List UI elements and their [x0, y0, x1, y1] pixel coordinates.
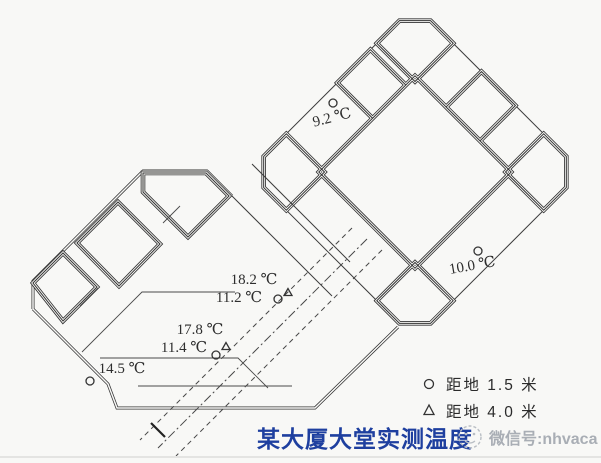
- watermark-text: 微信号:nhvaca: [488, 429, 598, 448]
- temp-label-10-0: 10.0 ℃: [448, 254, 497, 278]
- circle-marker-9-2: [329, 99, 337, 107]
- watermark: 微信号:nhvaca: [459, 426, 598, 448]
- scanned-floor-plan-page: 9.2 ℃ 18.2 ℃ 11.2 ℃ 17.8 ℃ 11.4 ℃ 14.5 ℃…: [0, 0, 601, 463]
- temp-label-18-2: 18.2 ℃: [231, 272, 278, 288]
- legend-triangle-icon: [424, 405, 434, 415]
- legend: 距地 1.5 米 距地 4.0 米: [424, 376, 539, 421]
- floor-plan-svg: 9.2 ℃ 18.2 ℃ 11.2 ℃ 17.8 ℃ 11.4 ℃ 14.5 ℃…: [0, 0, 601, 463]
- temp-label-14-5: 14.5 ℃: [99, 361, 146, 377]
- tower-outer-boundary: [248, 5, 582, 339]
- sensor-markers: [86, 99, 482, 385]
- temp-label-9-2: 9.2 ℃: [311, 106, 353, 131]
- section-line-tick: [151, 423, 165, 437]
- watermark-logo-dot: [465, 433, 468, 436]
- temp-label-11-2: 11.2 ℃: [216, 290, 262, 306]
- temp-label-17-8: 17.8 ℃: [177, 322, 224, 338]
- circle-marker-10-0: [474, 247, 482, 255]
- triangle-marker-11-4: [222, 343, 230, 350]
- watermark-logo-dot: [473, 433, 476, 436]
- circle-marker-14-5: [86, 377, 94, 385]
- legend-circle-icon: [425, 380, 434, 389]
- legend-label-1-5m: 距地 1.5 米: [446, 376, 539, 394]
- legend-label-4-0m: 距地 4.0 米: [446, 403, 539, 421]
- caption-title: 某大厦大堂实测温度: [257, 426, 473, 452]
- link-corridor-line: [252, 164, 350, 262]
- gallery-inner-line-2: [80, 288, 98, 306]
- lobby-side-rooms: [33, 173, 229, 321]
- scan-edge-line: [0, 456, 601, 458]
- tower-walls: [248, 5, 582, 339]
- tower-block: [248, 5, 582, 339]
- temp-label-11-4: 11.4 ℃: [161, 340, 207, 356]
- lobby-block: [33, 164, 398, 408]
